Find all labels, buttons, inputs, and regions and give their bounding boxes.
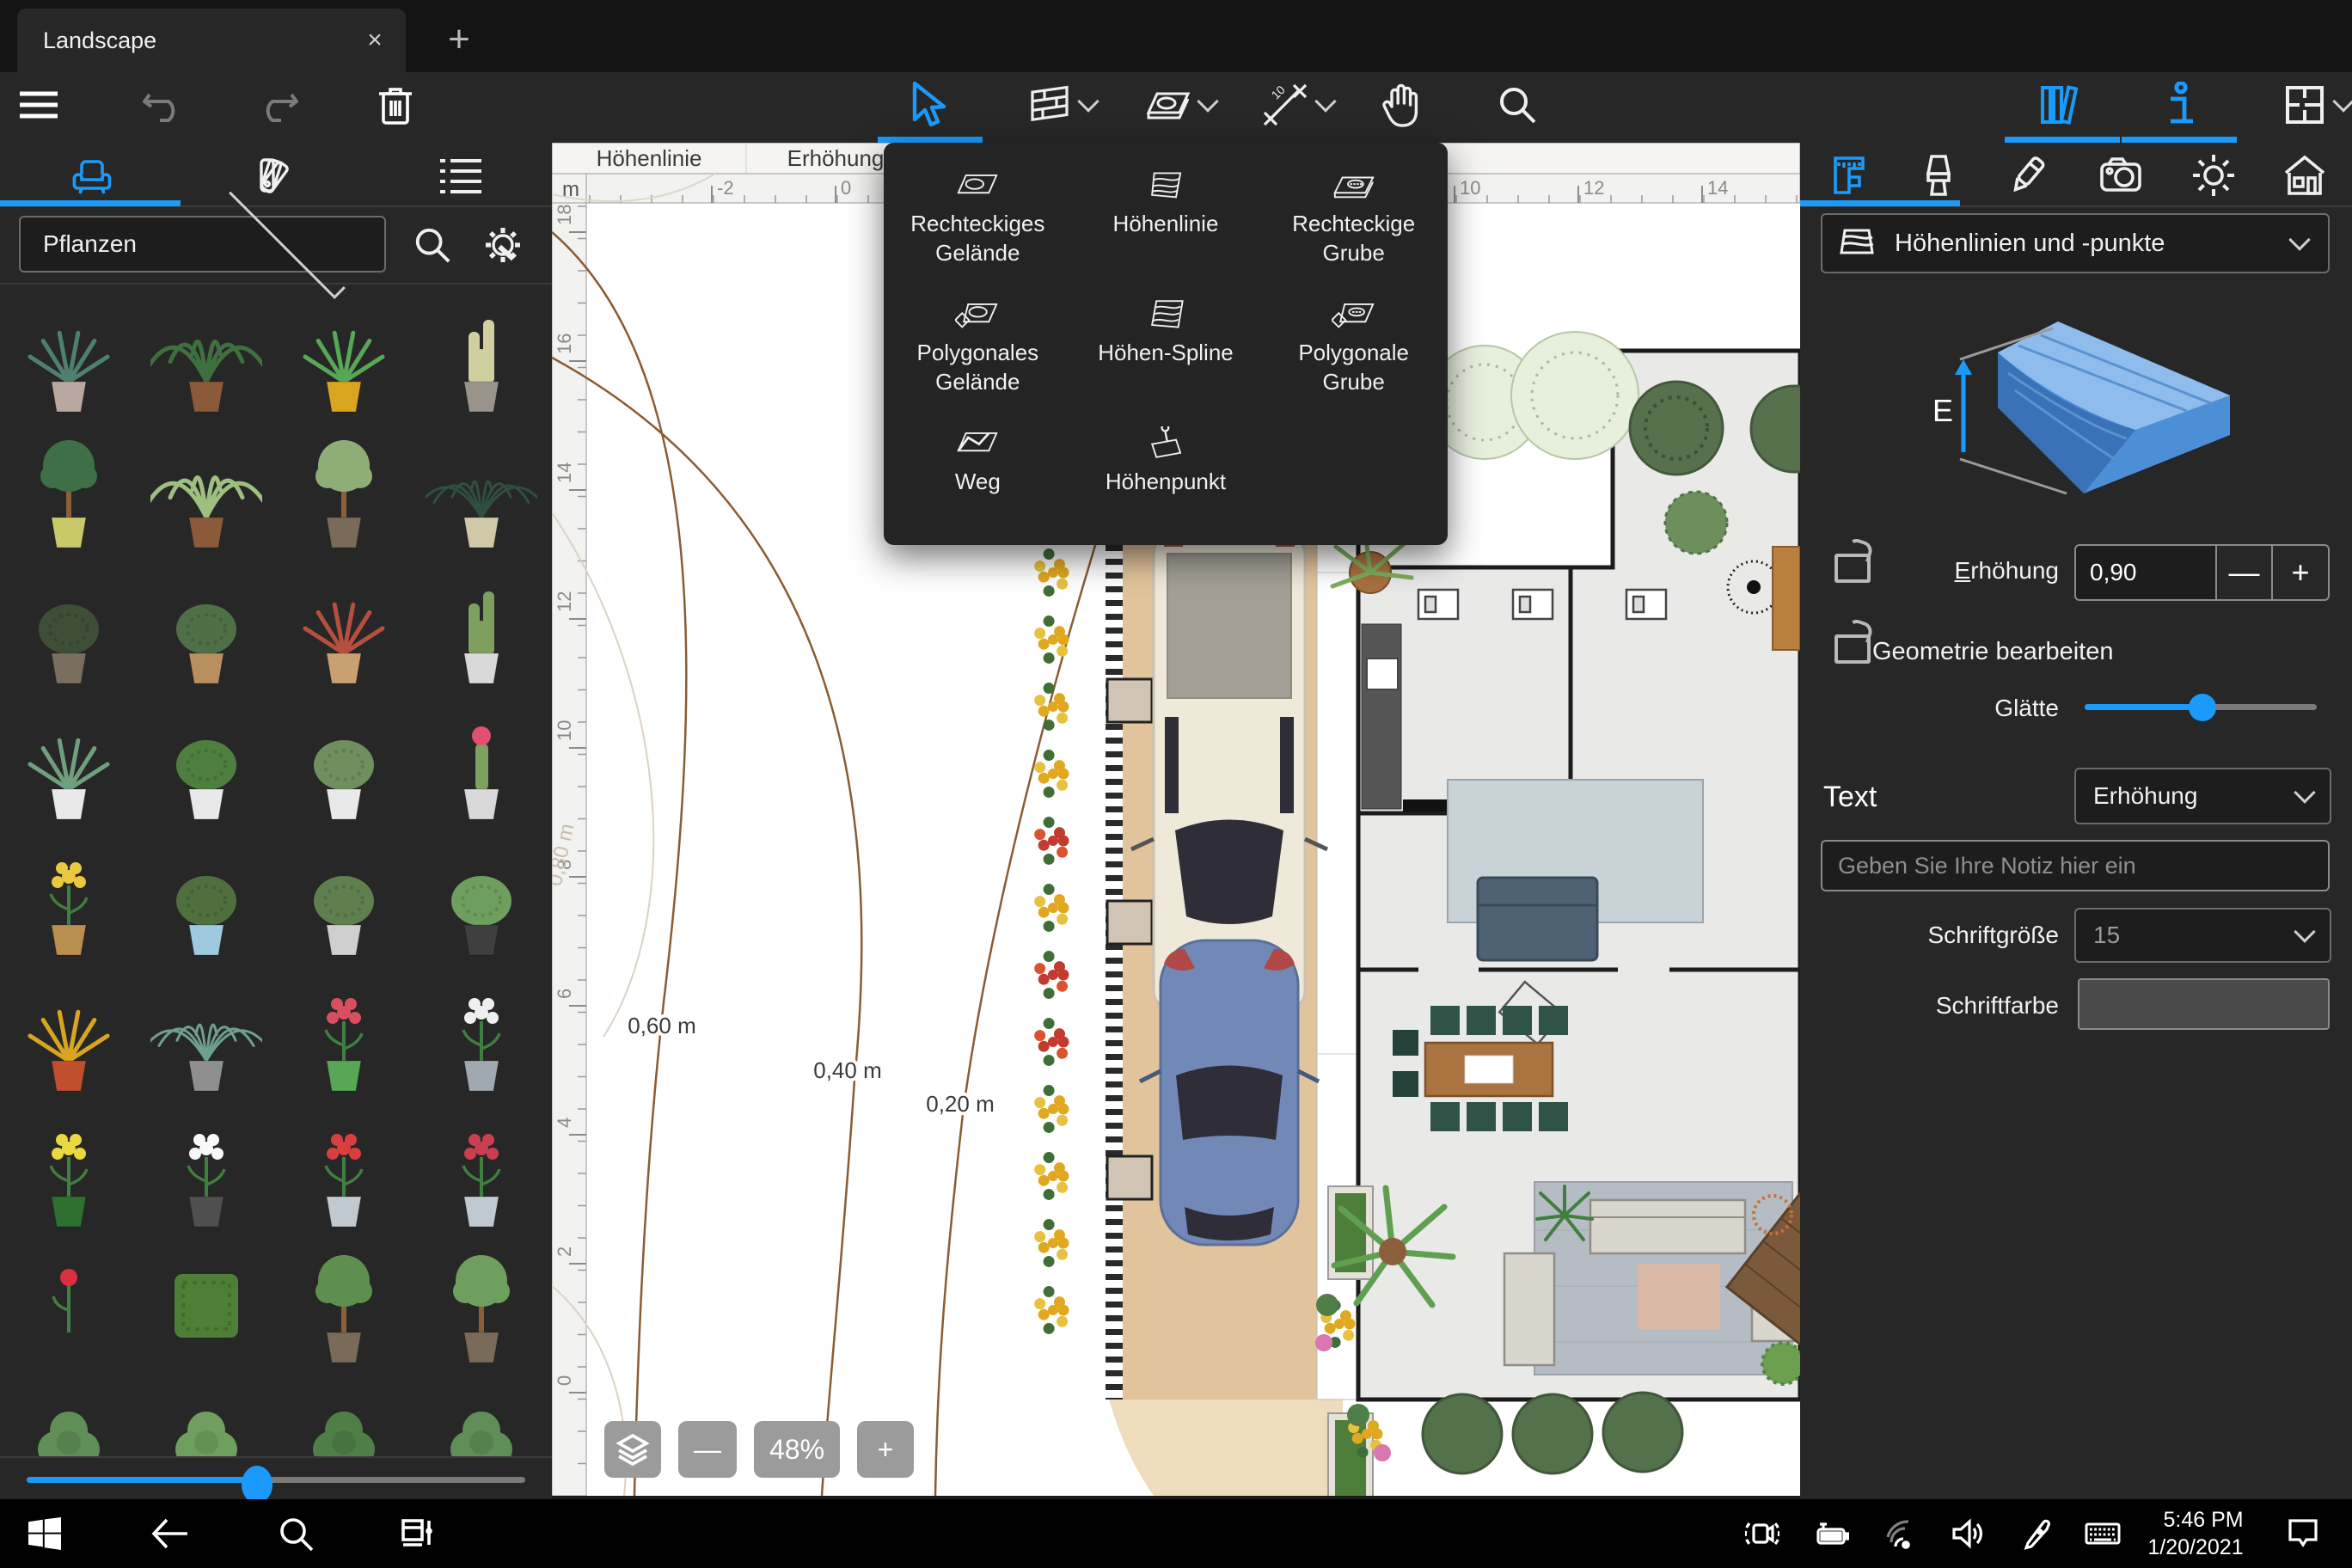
info-active-underline — [2122, 137, 2237, 143]
plant-thumbnail[interactable] — [275, 963, 413, 1099]
back-icon[interactable] — [138, 1499, 203, 1568]
app-window: Landscape × + 10 — [0, 0, 2352, 1568]
hamburger-menu-icon[interactable] — [9, 72, 69, 138]
plant-thumbnail[interactable] — [138, 1099, 275, 1234]
lock-icon[interactable] — [1834, 554, 1871, 583]
library-active-underline — [2005, 137, 2120, 143]
smoothness-label: Glätte — [1870, 695, 2059, 722]
plant-thumbnail[interactable] — [0, 1370, 138, 1456]
start-icon[interactable] — [12, 1499, 77, 1568]
elevation-input[interactable]: 0,90 — [2074, 544, 2217, 601]
plant-thumbnail[interactable] — [275, 1234, 413, 1370]
garden-bushes — [1423, 1393, 1682, 1473]
contour-label: 0,40 m — [813, 1057, 882, 1083]
plant-thumbnail[interactable] — [0, 420, 138, 555]
plant-thumbnail[interactable] — [138, 1234, 275, 1370]
tab-title: Landscape — [43, 28, 356, 54]
chevron-down-icon — [2294, 781, 2315, 803]
plant-thumbnail[interactable] — [413, 1370, 550, 1456]
edit-geometry-label[interactable]: Geometrie bearbeiten — [1872, 638, 2114, 666]
plant-thumbnail[interactable] — [138, 963, 275, 1099]
plant-thumbnail[interactable] — [138, 827, 275, 963]
terrain-illustration: E — [1895, 301, 2264, 533]
inspector-tabs — [1800, 143, 2352, 207]
chevron-down-icon — [1077, 90, 1099, 112]
volume-icon[interactable] — [1941, 1499, 1996, 1568]
library-panel: Pflanzen — [0, 143, 552, 1499]
plant-thumbnail[interactable] — [275, 284, 413, 420]
select-cursor-icon[interactable] — [890, 72, 971, 138]
plant-thumbnail[interactable] — [0, 1099, 138, 1234]
menu-item-polygonale-grube[interactable]: Polygonale Grube — [1259, 285, 1448, 414]
height-spline-icon — [1143, 297, 1188, 332]
elevation-letter: E — [1932, 393, 1953, 428]
chevron-down-icon — [1197, 90, 1218, 112]
list-tab[interactable] — [430, 143, 490, 208]
svg-text:6: 6 — [554, 989, 575, 999]
keyboard-icon[interactable] — [2075, 1499, 2130, 1568]
plant-thumbnail[interactable] — [138, 420, 275, 555]
poly-terrain-icon — [955, 297, 1000, 332]
plant-thumbnail[interactable] — [275, 1370, 413, 1456]
poly-pit-icon — [1332, 297, 1376, 332]
contour-label: 0,60 m — [628, 1013, 696, 1038]
svg-text:2: 2 — [554, 1246, 575, 1257]
search-icon[interactable] — [263, 1499, 328, 1568]
windows-taskbar: 5:46 PM 1/20/2021 — [0, 1499, 2352, 1568]
library-icon[interactable] — [2020, 72, 2098, 138]
menu-item-rechteckiges-gel-nde[interactable]: Rechteckiges Gelände — [884, 156, 1072, 285]
category-dropdown[interactable]: Pflanzen — [19, 216, 386, 273]
object-type-value: Höhenlinien und -punkte — [1895, 230, 2283, 258]
increase-elevation-button[interactable]: + — [2273, 544, 2330, 601]
svg-text:10: 10 — [1460, 177, 1480, 199]
decrease-elevation-button[interactable]: — — [2217, 544, 2273, 601]
clock-date: 1/20/2021 — [2147, 1534, 2243, 1562]
sideboard — [1773, 547, 1800, 650]
note-placeholder: Geben Sie Ihre Notiz hier ein — [1838, 853, 2136, 879]
furniture-tab[interactable] — [62, 143, 122, 208]
document-tab[interactable]: Landscape × — [17, 9, 406, 72]
thumbnail-size-slider-row — [0, 1456, 552, 1501]
chevron-down-icon — [2332, 90, 2352, 112]
font-size-dropdown[interactable]: 15 — [2074, 908, 2331, 963]
canvas-zoom-controls: — 48% + — [604, 1421, 914, 1478]
smoothness-slider-fill — [2085, 704, 2202, 710]
plant-thumbnail-grid — [0, 284, 552, 1456]
title-bar: Landscape × + — [0, 0, 2352, 72]
chevron-down-icon — [2288, 229, 2310, 250]
search-icon[interactable] — [1483, 72, 1552, 138]
new-tab-button[interactable]: + — [435, 15, 483, 64]
size-slider-thumb[interactable] — [242, 1466, 273, 1504]
bath-fixtures — [1418, 590, 1666, 619]
lock-icon[interactable] — [1834, 634, 1871, 664]
svg-text:12: 12 — [1583, 177, 1604, 199]
elevation-label: Erhöhung — [1870, 557, 2059, 585]
redo-icon[interactable] — [248, 72, 308, 138]
edit-tab[interactable] — [1998, 143, 2058, 208]
lounge-chair — [1504, 1253, 1554, 1365]
wall-tool-icon[interactable] — [1014, 72, 1109, 138]
plant-thumbnail[interactable] — [413, 827, 550, 963]
kitchen-counter — [1362, 624, 1401, 809]
object-type-dropdown[interactable]: Höhenlinien und -punkte — [1821, 213, 2330, 273]
plant-thumbnail[interactable] — [138, 1370, 275, 1456]
plant-thumbnail[interactable] — [0, 555, 138, 691]
camera-tab[interactable] — [2091, 143, 2151, 208]
terrain-tools-menu: Rechteckiges Gelände Höhenlinie Rechteck… — [884, 143, 1448, 545]
action-center-icon[interactable] — [2273, 1499, 2333, 1568]
plant-thumbnail[interactable] — [275, 827, 413, 963]
plant-thumbnail[interactable] — [138, 555, 275, 691]
menu-item-rechteckige-grube[interactable]: Rechteckige Grube — [1259, 156, 1448, 285]
plant-thumbnail[interactable] — [0, 284, 138, 420]
svg-text:14: 14 — [554, 462, 575, 483]
note-input[interactable]: Geben Sie Ihre Notiz hier ein — [1821, 840, 2330, 891]
library-tabs — [0, 143, 552, 207]
menu-item-weg[interactable]: Weg — [884, 414, 1072, 518]
clock-time: 5:46 PM — [2147, 1506, 2243, 1534]
svg-text:10: 10 — [554, 720, 575, 741]
svg-text:4: 4 — [554, 1118, 575, 1128]
plant-thumbnail[interactable] — [413, 1099, 550, 1234]
sofa — [1478, 878, 1597, 960]
plant-thumbnail[interactable] — [275, 420, 413, 555]
yard-trees — [1428, 332, 1638, 459]
taskbar-clock[interactable]: 5:46 PM 1/20/2021 — [2135, 1499, 2256, 1568]
cast-icon[interactable] — [1735, 1499, 1790, 1568]
path-icon — [955, 426, 1000, 461]
light-tab[interactable] — [2184, 143, 2244, 208]
zoom-in-button[interactable]: + — [857, 1421, 914, 1478]
info-icon[interactable] — [2142, 72, 2220, 138]
battery-icon[interactable] — [1804, 1499, 1859, 1568]
category-bar: Pflanzen — [0, 207, 552, 285]
plant-thumbnail[interactable] — [413, 963, 550, 1099]
undo-icon[interactable] — [133, 72, 193, 138]
outdoor-sofa — [1590, 1200, 1745, 1253]
plant-thumbnail[interactable] — [0, 691, 138, 827]
plant-thumbnail[interactable] — [138, 284, 275, 420]
plant-thumbnail[interactable] — [413, 284, 550, 420]
font-color-label: Schriftfarbe — [1870, 992, 2059, 1020]
plant-thumbnail[interactable] — [0, 1234, 138, 1370]
font-size-label: Schriftgröße — [1870, 922, 2059, 949]
text-type-dropdown[interactable]: Erhöhung — [2074, 768, 2331, 824]
plant-thumbnail[interactable] — [138, 691, 275, 827]
header-col-erhoehung: Erhöhung — [787, 145, 885, 171]
pen-icon[interactable] — [2010, 1499, 2065, 1568]
svg-text:18: 18 — [554, 205, 575, 225]
active-tab-underline — [0, 200, 181, 206]
chevron-down-icon — [2294, 921, 2315, 942]
chevron-down-icon — [1314, 90, 1336, 112]
flower-border[interactable] — [1034, 548, 1069, 1334]
plant-thumbnail[interactable] — [413, 691, 550, 827]
size-slider-fill — [27, 1477, 256, 1483]
wifi-icon[interactable] — [1874, 1499, 1929, 1568]
plant-thumbnail[interactable] — [275, 1099, 413, 1234]
svg-text:14: 14 — [1707, 177, 1728, 199]
zoom-level-button[interactable]: 48% — [754, 1421, 840, 1478]
rect-terrain-icon — [955, 168, 1000, 203]
active-inspector-tab-underline — [1800, 200, 1960, 206]
plant-thumbnail[interactable] — [413, 1234, 550, 1370]
svg-text:0: 0 — [841, 177, 851, 199]
menu-item-h-henlinie[interactable]: Höhenlinie — [1072, 156, 1260, 285]
text-heading: Text — [1823, 781, 1877, 814]
menu-item-h-hen-spline[interactable]: Höhen-Spline — [1072, 285, 1260, 414]
plant-thumbnail[interactable] — [413, 555, 550, 691]
dimensions-tab[interactable] — [1819, 143, 1879, 208]
plant-thumbnail[interactable] — [275, 691, 413, 827]
hand-pan-icon[interactable] — [1367, 72, 1436, 138]
garden-path[interactable] — [1109, 1400, 1343, 1496]
active-tool-underline — [878, 137, 983, 143]
building-tab[interactable] — [2275, 143, 2335, 208]
close-icon[interactable]: × — [356, 21, 394, 59]
task-view-icon[interactable] — [385, 1499, 450, 1568]
floorplan-view-icon[interactable] — [2269, 72, 2352, 138]
svg-text:10: 10 — [1269, 83, 1288, 102]
indoor-plant — [1665, 492, 1727, 554]
inspector-panel: Höhenlinien und -punkte E Erhöhung 0,90 … — [1800, 143, 2352, 1499]
plant-thumbnail[interactable] — [413, 420, 550, 555]
font-color-swatch[interactable] — [2078, 978, 2330, 1030]
settings-icon[interactable] — [473, 212, 533, 278]
patio-mat — [1638, 1264, 1720, 1329]
menu-item-polygonales-gel-nde[interactable]: Polygonales Gelände — [884, 285, 1072, 414]
contour-label: 0,20 m — [926, 1091, 995, 1117]
height-point-icon — [1143, 426, 1188, 461]
measure-tool-icon[interactable]: 10 — [1251, 72, 1345, 138]
contour-line-icon — [1143, 168, 1188, 203]
plant-thumbnail[interactable] — [275, 555, 413, 691]
layers-button[interactable] — [604, 1421, 661, 1478]
svg-text:16: 16 — [554, 334, 575, 354]
menu-item-h-henpunkt[interactable]: Höhenpunkt — [1072, 414, 1260, 518]
svg-text:0: 0 — [554, 1375, 575, 1386]
header-col-hoehenlinie: Höhenlinie — [597, 145, 702, 171]
materials-tab[interactable] — [1908, 143, 1969, 208]
category-value: Pflanzen — [43, 230, 190, 258]
plant-thumbnail[interactable] — [0, 827, 138, 963]
trash-icon[interactable] — [365, 72, 426, 138]
search-icon[interactable] — [402, 212, 462, 278]
rect-pit-icon — [1332, 168, 1376, 203]
terrain-tool-icon[interactable] — [1133, 72, 1228, 138]
smoothness-slider-thumb[interactable] — [2189, 694, 2216, 721]
svg-text:-2: -2 — [717, 177, 734, 199]
svg-text:12: 12 — [554, 591, 575, 612]
plant-thumbnail[interactable] — [0, 963, 138, 1099]
toolbar: 10 — [0, 72, 2352, 143]
zoom-out-button[interactable]: — — [678, 1421, 737, 1478]
blue-car[interactable] — [1140, 940, 1319, 1245]
